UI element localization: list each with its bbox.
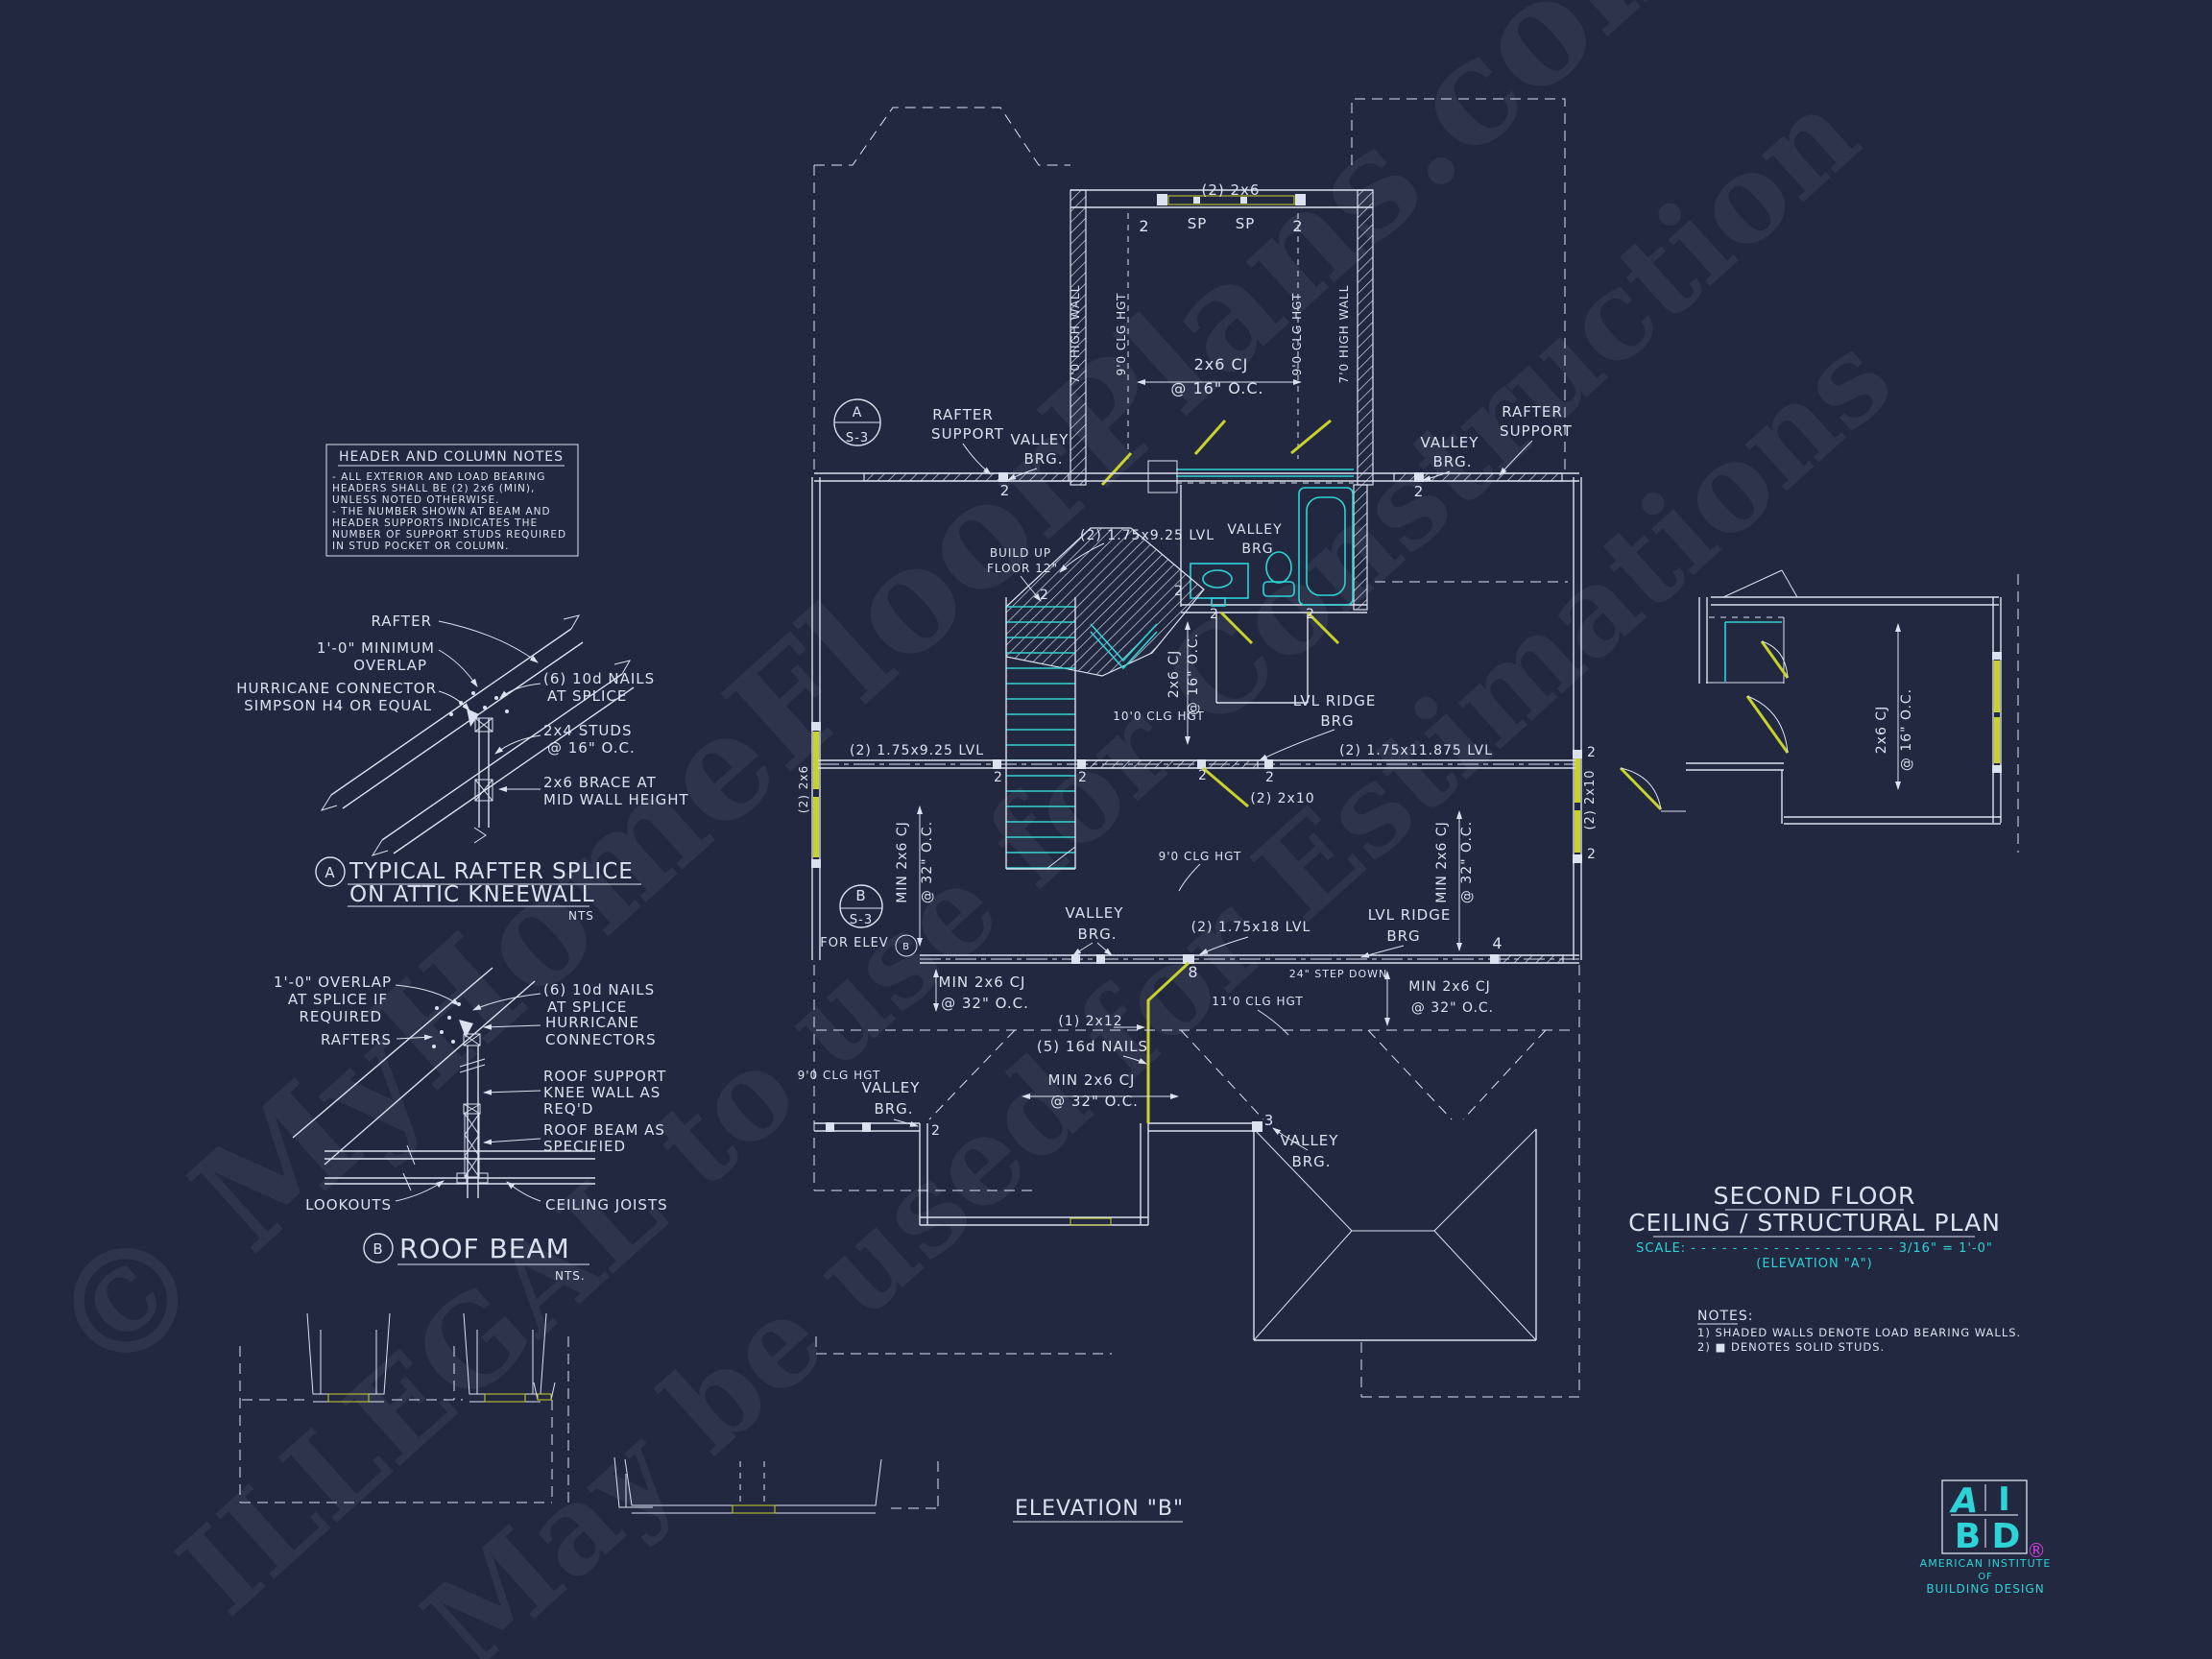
plan-annotation: 2 [1139,217,1149,235]
plan-annotation: FLOOR 12" [987,562,1058,575]
plan-annotation: VALLEY [1421,434,1479,451]
label-roof-beam: ROOF BEAM AS [543,1121,665,1139]
label-rafters: RAFTERS [321,1031,392,1048]
plan-annotation: 2x6 CJ [1194,355,1249,373]
plan-annotation: MIN 2x6 CJ [1408,979,1491,995]
plan-annotation: VALLEY [1011,431,1070,448]
plan-annotation: 7'0 HIGH WALL [1069,285,1082,384]
plan-scale: SCALE: - - - - - - - - - - - - - - - - -… [1636,1241,1993,1256]
plan-annotation: BRG. [1023,450,1063,468]
label-hurricane-connector: HURRICANE CONNECTOR [236,680,437,697]
plan-annotation: (5) 16d NAILS [1037,1038,1148,1055]
plan-annotation: @ 16" O.C. [1899,688,1914,771]
label-overlap: AT SPLICE IF [288,991,388,1008]
plan-annotation: 9'0 CLG HGT [1159,850,1242,863]
drawing-canvas: © MyHomeFloorPlans.com ILLEGAL to use fo… [0,0,2212,1659]
plan-annotation: S-3 [850,913,873,927]
logo-org-line3: BUILDING DESIGN [1926,1582,2044,1596]
plan-annotation: B [902,942,910,952]
label-studs: 2x4 STUDS [543,722,632,739]
plan-annotation: 9'0 CLG HGT [1115,293,1128,376]
plan-annotation: (2) 2x6 [797,765,810,813]
plan-annotation: 2 [1198,768,1208,783]
detail-b-title: ROOF BEAM [399,1233,570,1264]
plan-annotation: 4 [1492,934,1503,952]
plan-annotation: 2 [1414,483,1425,500]
plan-annotation: (2) 2x6 [1202,181,1261,199]
plan-annotation: (2) 1.75x18 LVL [1191,920,1311,935]
label-kneewall: KNEE WALL AS [543,1084,661,1101]
elevation-b-text: ELEVATION "B" [1015,1497,1184,1521]
plan-annotation: (2) 1.75x11.875 LVL [1339,743,1493,758]
plan-annotation: (2) 2x10 [1583,769,1598,829]
plan-annotation: MIN 2x6 CJ [895,821,910,903]
plan-annotation: BRG [1386,927,1420,945]
blueprint-sheet: © MyHomeFloorPlans.com ILLEGAL to use fo… [0,0,2212,1659]
plan-annotation: 10'0 CLG HGT [1113,709,1204,723]
plan-annotation: 2 [931,1123,941,1139]
detail-a-title: TYPICAL RAFTER SPLICE [349,859,634,884]
plan-annotation: SP [1236,215,1256,232]
label-hurricane: HURRICANE [545,1014,639,1031]
notes-line: HEADER SUPPORTS INDICATES THE [332,517,538,529]
label-kneewall: ROOF SUPPORT [543,1068,666,1085]
detail-a-title: ON ATTIC KNEEWALL [349,882,595,907]
plan-annotation: 24" STEP DOWN [1289,968,1388,980]
plan-annotation: @ 32" O.C. [1050,1093,1139,1110]
plan-annotation: BRG. [874,1100,913,1118]
plan-annotation: BRG. [1432,453,1472,470]
logo-org-line2: OF [1978,1572,1993,1582]
plan-annotation: VALLEY [1281,1132,1339,1149]
plan-annotation: BRG. [1077,926,1117,943]
plan-annotation: 2 [1040,588,1049,603]
plan-annotation: 2 [1292,217,1303,235]
plan-annotation: 2 [1210,607,1219,622]
plan-annotation: LVL RIDGE [1368,906,1452,924]
plan-annotation: VALLEY [1227,522,1282,538]
detail-a-scale: NTS [568,909,594,923]
logo-letter-i: I [1998,1480,2011,1519]
plan-annotation: @ 32" O.C. [920,821,935,903]
plan-annotation: (2) 2x10 [1250,791,1314,806]
plan-annotation: 2 [994,770,1003,785]
plan-annotation: MIN 2x6 CJ [939,974,1026,991]
plan-annotation: (1) 2x12 [1058,1014,1122,1029]
plan-annotation: VALLEY [1066,904,1124,922]
plan-notes-title: NOTES: [1697,1309,1754,1324]
detail-b-scale: NTS. [555,1269,586,1283]
plan-annotation: 2x6 CJ [1874,706,1889,754]
plan-annotation: 7'0 HIGH WALL [1337,285,1351,384]
label-rafter: RAFTER [371,613,432,630]
plan-elevation-ref: (ELEVATION "A") [1756,1257,1872,1271]
plan-annotation: FOR ELEV [820,936,888,950]
plan-annotation: SUPPORT [1500,422,1573,440]
label-overlap: REQUIRED [299,1008,382,1025]
marker-a-sheet: S-3 [846,431,869,445]
plan-note: 2) ■ DENOTES SOLID STUDS. [1697,1340,1885,1354]
plan-note: 1) SHADED WALLS DENOTE LOAD BEARING WALL… [1697,1326,2021,1339]
plan-annotation: @ 16" O.C. [1186,633,1201,715]
plan-annotation: (2) 1.75x9.25 LVL [850,743,984,758]
logo-letter-a: A [1949,1481,1980,1521]
label-lookouts: LOOKOUTS [305,1196,392,1214]
plan-title-line1: SECOND FLOOR [1714,1182,1916,1210]
plan-annotation: LVL RIDGE [1293,692,1377,709]
label-brace: MID WALL HEIGHT [543,791,689,808]
notes-line: - ALL EXTERIOR AND LOAD BEARING [332,471,545,483]
stair-treads [1006,597,1075,869]
notes-line: IN STUD POCKET OR COLUMN. [332,541,509,552]
label-studs: @ 16" O.C. [547,739,636,757]
plan-annotation: RAFTER [932,406,994,423]
plan-annotation: 2 [1306,607,1315,622]
label-overlap: OVERLAP [353,657,427,674]
logo-letter-b: B [1955,1517,1982,1556]
plan-annotation: 2 [1265,770,1275,785]
notes-title: HEADER AND COLUMN NOTES [339,449,564,465]
plan-annotation: 2x6 CJ [1166,650,1182,698]
plan-annotation: BUILD UP [990,546,1051,560]
plan-annotation: RAFTER [1502,403,1563,421]
plan-annotation: @ 32" O.C. [1411,1000,1494,1016]
label-roof-beam: SPECIFIED [543,1138,626,1155]
label-overlap: 1'-0" MINIMUM [317,639,435,657]
label-hurricane: CONNECTORS [545,1031,657,1048]
plan-title-line2: CEILING / STRUCTURAL PLAN [1628,1209,2001,1237]
plan-annotation: 11'0 CLG HGT [1212,995,1303,1008]
plan-annotation: 8 [1188,963,1198,981]
plan-annotation: @ 32" O.C. [1459,821,1475,903]
notes-line: NUMBER OF SUPPORT STUDS REQUIRED [332,529,566,541]
plan-annotation: MIN 2x6 CJ [1048,1071,1136,1089]
label-hurricane-connector: SIMPSON H4 OR EQUAL [244,697,432,714]
plan-annotation: 3 [1264,1112,1275,1129]
plan-annotation: 2 [1587,745,1597,760]
plan-annotation: @ 16" O.C. [1170,379,1263,397]
marker-a-letter: A [853,405,863,421]
logo-letter-d: D [1992,1517,2022,1556]
plan-annotation: 2 [1000,482,1011,499]
label-nails: AT SPLICE [547,687,627,705]
notes-line: HEADERS SHALL BE (2) 2x6 (MIN), [332,483,535,494]
label-kneewall: REQ'D [543,1100,593,1118]
plan-annotation: 2 [1174,584,1184,599]
plan-annotation: SUPPORT [931,425,1004,443]
plan-annotation: SP [1188,215,1208,232]
plan-annotation: (2) 1.75x9.25 LVL [1080,528,1214,543]
plan-annotation: VALLEY [862,1079,921,1096]
plan-annotation: MIN 2x6 CJ [1434,821,1450,903]
label-nails: (6) 10d NAILS [543,670,655,687]
label-ceiling-joists: CEILING JOISTS [545,1196,668,1214]
label-nails: (6) 10d NAILS [543,981,655,998]
label-overlap: 1'-0" OVERLAP [274,974,392,991]
notes-line: - THE NUMBER SHOWN AT BEAM AND [332,506,551,517]
plan-annotation: B [855,887,866,904]
detail-b-marker: B [373,1240,383,1258]
plan-annotation: 2 [1587,847,1597,862]
plan-annotation: BRG. [1291,1153,1331,1170]
plan-annotation: 9'0 CLG HGT [1290,293,1304,376]
plan-annotation: BRG [1241,541,1273,557]
plan-annotation: BRG [1320,712,1354,730]
label-brace: 2x6 BRACE AT [543,774,657,791]
notes-line: UNLESS NOTED OTHERWISE. [332,494,499,506]
detail-a-marker: A [325,864,335,881]
plan-annotation: @ 32" O.C. [941,995,1029,1012]
plan-annotation: 2 [1078,770,1088,785]
elevation-b-label: ELEVATION "B" [1013,1497,1184,1522]
logo-org-line1: AMERICAN INSTITUTE [1920,1557,2052,1570]
